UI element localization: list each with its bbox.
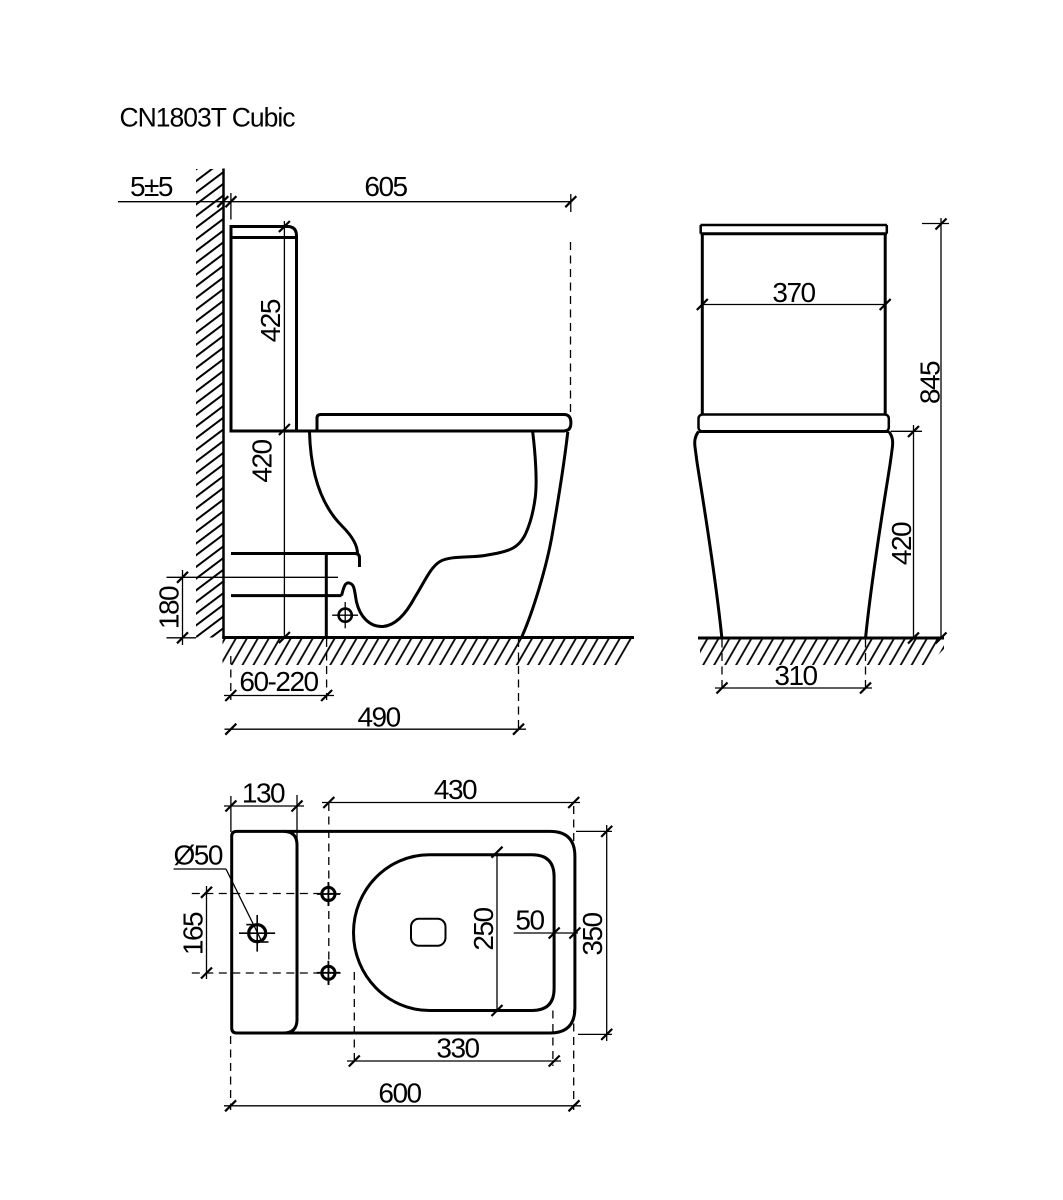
svg-text:CN1803T Cubic: CN1803T Cubic [120, 103, 296, 133]
svg-text:490: 490 [357, 702, 400, 733]
svg-text:165: 165 [178, 912, 209, 955]
svg-text:425: 425 [255, 299, 286, 342]
svg-text:600: 600 [378, 1077, 421, 1108]
svg-text:180: 180 [154, 586, 185, 629]
svg-text:50: 50 [515, 905, 544, 936]
svg-text:250: 250 [468, 907, 499, 950]
svg-text:605: 605 [364, 171, 407, 202]
svg-text:Ø50: Ø50 [174, 840, 223, 871]
svg-text:330: 330 [436, 1033, 479, 1064]
svg-text:130: 130 [242, 778, 285, 809]
svg-text:420: 420 [247, 439, 278, 482]
svg-text:845: 845 [915, 361, 946, 404]
svg-text:350: 350 [577, 912, 608, 955]
svg-text:60-220: 60-220 [239, 666, 318, 697]
svg-text:430: 430 [434, 774, 477, 805]
svg-text:370: 370 [772, 277, 815, 308]
svg-text:5±5: 5±5 [130, 171, 173, 202]
svg-text:420: 420 [886, 522, 917, 565]
svg-text:310: 310 [774, 660, 817, 691]
